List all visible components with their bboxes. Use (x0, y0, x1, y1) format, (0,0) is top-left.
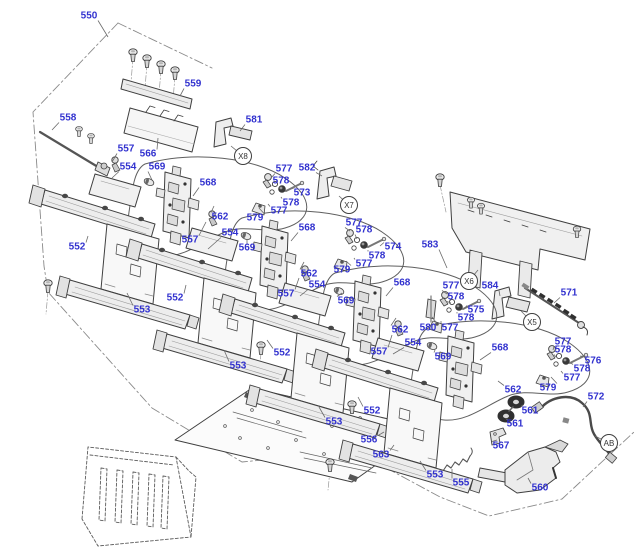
ref-label-X5: X5 (527, 318, 537, 327)
part-label-569: 569 (435, 352, 452, 363)
part-label-569: 569 (338, 296, 355, 307)
part-label-579: 579 (334, 265, 351, 276)
part-label-554: 554 (309, 280, 326, 291)
part-label-563: 563 (373, 450, 390, 461)
ref-label-X6: X6 (464, 277, 474, 286)
part-label-582: 582 (299, 163, 316, 174)
part-label-571: 571 (561, 288, 578, 299)
part-559-top-bar (121, 49, 192, 109)
part-label-572: 572 (588, 392, 605, 403)
part-label-562: 562 (392, 325, 409, 336)
screw (257, 342, 265, 355)
part-label-553: 553 (326, 417, 343, 428)
part-560-bracket (478, 440, 568, 493)
part-label-568: 568 (200, 178, 217, 189)
ref-label-X8: X8 (238, 152, 248, 161)
part-label-583: 583 (422, 240, 439, 251)
leader-line-568 (291, 233, 298, 242)
part-label-558: 558 (60, 113, 77, 124)
diagram-canvas: 5505595585815575665545695685775825785735… (0, 0, 640, 549)
part-label-577: 577 (271, 206, 288, 217)
part-580-holder (426, 296, 436, 322)
part-label-577: 577 (276, 164, 293, 175)
part-583-plate (436, 174, 590, 298)
part-label-562: 562 (505, 385, 522, 396)
part-label-581: 581 (246, 115, 263, 126)
leader-line-568 (480, 353, 491, 361)
ref-leader-X8 (231, 146, 236, 151)
part-label-579: 579 (540, 383, 557, 394)
leader-line-576 (580, 356, 584, 357)
part-label-578: 578 (273, 176, 290, 187)
part-label-553: 553 (427, 470, 444, 481)
part-label-557: 557 (371, 347, 388, 358)
ref-leader-X7 (339, 196, 343, 199)
part-label-568: 568 (492, 343, 509, 354)
part-label-578: 578 (555, 345, 572, 356)
part-label-552: 552 (274, 348, 291, 359)
part-label-554: 554 (222, 228, 239, 239)
part-label-553: 553 (134, 305, 151, 316)
screw (44, 280, 52, 293)
part-label-568: 568 (394, 278, 411, 289)
part-label-584: 584 (482, 281, 499, 292)
leader-line-552 (267, 340, 273, 349)
part-label-577: 577 (442, 323, 459, 334)
part-label-578: 578 (458, 313, 475, 324)
part-label-562: 562 (301, 269, 318, 280)
leader-line-554 (112, 172, 119, 179)
part-label-557: 557 (278, 289, 295, 300)
leader-line-552 (184, 285, 186, 294)
part-label-557: 557 (118, 144, 135, 155)
part-label-554: 554 (120, 162, 137, 173)
part-566-plate (124, 106, 198, 152)
leader-line-568 (193, 188, 199, 197)
leader-line-550 (98, 21, 108, 38)
ref-label-X7: X7 (344, 201, 354, 210)
part-label-577: 577 (564, 373, 581, 384)
part-label-560: 560 (532, 483, 549, 494)
leader-line-562 (498, 381, 504, 386)
part-label-577: 577 (443, 281, 460, 292)
part-label-554: 554 (405, 338, 422, 349)
part-582-bracket (313, 161, 352, 199)
exploded-parts-diagram: 5505595585815575665545695685775825785735… (0, 0, 640, 549)
part-label-556: 556 (361, 435, 378, 446)
part-label-562: 562 (212, 212, 229, 223)
part-label-555: 555 (453, 478, 470, 489)
leader-line-574 (380, 243, 384, 247)
part-label-567: 567 (493, 441, 510, 452)
part-label-552: 552 (69, 242, 86, 253)
part-label-578: 578 (356, 225, 373, 236)
part-label-569: 569 (149, 162, 166, 173)
leader-line-568 (386, 288, 393, 297)
leader-line-552 (86, 236, 88, 243)
part-label-568: 568 (299, 223, 316, 234)
part-label-557: 557 (182, 235, 199, 246)
part-label-569: 569 (239, 243, 256, 254)
diagram-artwork (29, 23, 634, 546)
ref-label-AB: AB (604, 439, 615, 448)
leader-line-571 (554, 298, 560, 304)
part-label-552: 552 (364, 406, 381, 417)
part-label-552: 552 (167, 293, 184, 304)
part-label-559: 559 (185, 79, 202, 90)
part-558-shaft (40, 126, 110, 176)
part-label-577: 577 (356, 259, 373, 270)
part-label-580: 580 (420, 323, 437, 334)
part-label-578: 578 (448, 292, 465, 303)
part-label-574: 574 (385, 242, 402, 253)
leader-line-558 (52, 123, 59, 131)
part-label-561: 561 (507, 419, 524, 430)
part-label-579: 579 (247, 213, 264, 224)
leader-line-559 (180, 89, 184, 97)
part-label-553: 553 (230, 361, 247, 372)
part-label-561: 561 (522, 406, 539, 417)
leader-line-552 (358, 397, 363, 407)
part-label-550: 550 (81, 11, 98, 22)
part-grid-frame (82, 447, 196, 546)
part-label-566: 566 (140, 149, 157, 160)
leader-line-583 (439, 250, 447, 269)
